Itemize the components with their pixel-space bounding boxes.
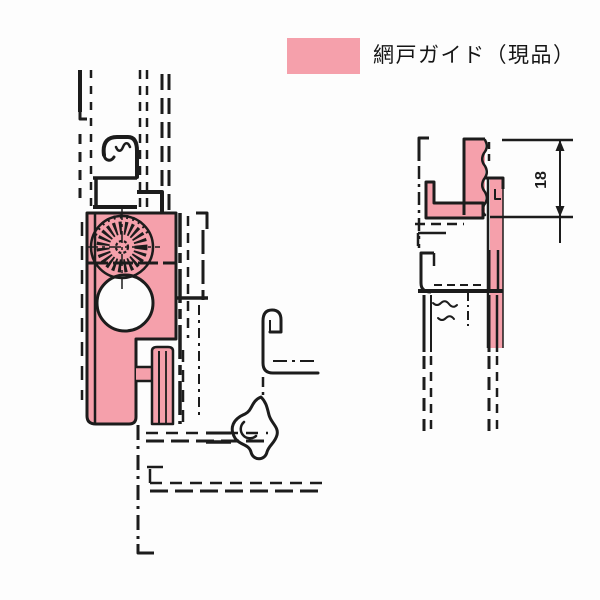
legend-label: 網戸ガイド（現品）	[373, 38, 576, 74]
guide-highlight-right	[426, 139, 503, 348]
right-section-view: 18	[415, 138, 573, 431]
dimension-arrow-down	[556, 206, 565, 217]
bore-circle	[97, 275, 153, 331]
dimension-arrow-up	[556, 140, 565, 151]
snap-clip-shape	[232, 397, 277, 459]
cross-section-drawing: 18	[0, 0, 600, 600]
rail-clip-profile	[206, 310, 318, 459]
sash-hook-profile	[93, 137, 162, 213]
left-section-view	[80, 70, 322, 553]
legend-swatch	[287, 38, 360, 74]
frame-lines-right-of-guide	[176, 213, 208, 424]
legend: 網戸ガイド（現品）	[287, 38, 576, 74]
technical-diagram-page: 18 網戸ガイド（現品）	[0, 0, 600, 600]
frame-dashed-lines-bottom	[138, 425, 322, 553]
dimension-label: 18	[533, 171, 550, 189]
